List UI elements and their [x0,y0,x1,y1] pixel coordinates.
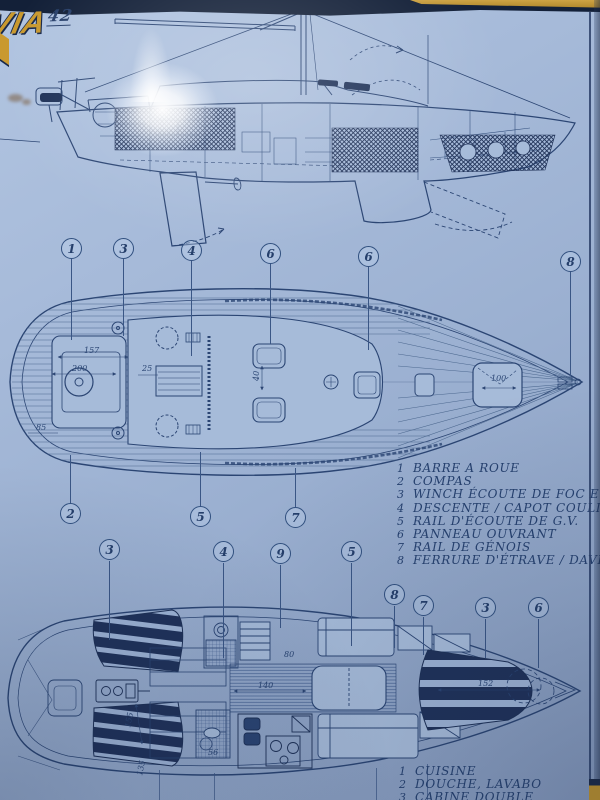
callout-circle: 4 [213,541,234,562]
legend-item: 2DOUCHE, LAVABO [399,777,542,790]
legend-label: CUISINE [415,764,476,778]
dim-label: 100 [491,374,506,383]
winch [112,427,124,439]
callout-leader-line [423,617,424,655]
legend-number: 3 [397,488,406,501]
porthole [460,144,476,160]
callout-leader-line [123,259,124,336]
porthole [488,142,504,158]
profile-cutaway-drawing [0,0,600,258]
callout-circle: 6 [358,246,379,267]
callout-leader-line [295,468,296,507]
legend-item: 1BARRE A ROUE [397,461,600,474]
toilet [214,623,228,637]
legend-number: 4 [397,502,406,515]
paper-smudge [8,94,23,102]
callout-leader-line [109,561,110,640]
callout-circle: 6 [260,243,281,264]
page-right-edge [594,0,600,800]
legend-item: 8FERRURE D'ÉTRAVE / DAVIER [397,553,600,566]
callout-leader-line [485,619,486,658]
legend-number: 2 [397,475,406,488]
legend-number: 8 [397,554,406,567]
legend-label: PANNEAU OUVRANT [413,527,556,541]
callout-leader-line [538,619,539,668]
settee [318,618,394,656]
deck-legend: 1BARRE A ROUE 2COMPAS 3WINCH ÉCOUTE DE F… [397,461,600,567]
companionway-steps [240,622,270,660]
legend-label: CABINE DOUBLE [415,790,534,800]
legend-label: BARRE A ROUE [413,461,520,475]
legend-label: FERRURE D'ÉTRAVE / DAVIER [413,553,600,567]
sink [244,718,260,730]
callout-circle: 2 [60,503,81,524]
dim-label: 157 [84,346,100,355]
callout-leader-line [570,272,571,376]
dim-label: 25 [141,364,152,373]
small-hatch [415,374,434,396]
legend-item: 6PANNEAU OUVRANT [397,527,600,540]
dim-label: 56 [208,748,218,757]
callout-circle: 8 [384,584,405,605]
paper-smudge [22,99,31,105]
callout-circle: 1 [61,238,82,259]
page-frame-line [589,12,591,800]
legend-number: 2 [399,778,408,791]
legend-label: DESCENTE / CAPOT COULISSANT [413,501,600,515]
legend-item: 1CUISINE [399,764,542,777]
callout-circle: 5 [190,506,211,527]
legend-number: 3 [399,791,408,800]
porthole [516,141,530,155]
brand-model: 42 [46,5,75,26]
legend-number: 5 [397,515,406,528]
callout-circle: 5 [341,541,362,562]
legend-label: RAIL D'ÉCOUTE DE G.V. [413,514,579,528]
legend-number: 1 [397,462,406,475]
opening-hatch [253,398,285,422]
rigging [85,8,570,118]
callout-circle: 8 [560,251,581,272]
dim-label: 40 [252,371,261,382]
settee [318,714,418,758]
dim-label: 200 [71,364,87,373]
dim-label: 80 [284,650,294,659]
callout-circle: 9 [270,543,291,564]
legend-item: 4DESCENTE / CAPOT COULISSANT [397,501,600,514]
legend-label: WINCH ÉCOUTE DE FOC ET SPI [413,487,600,501]
callout-circle: 3 [99,539,120,560]
callout-leader-line [270,264,271,344]
brand-logo: VIA42 [0,4,75,43]
engine-block [96,680,150,702]
dim-label: 152 [478,679,493,688]
extension-line [159,770,160,800]
callout-leader-line [200,452,201,506]
callout-circle: 3 [475,597,496,618]
deck-plan-drawing: 157 200 85 25 40 100 [0,285,600,480]
legend-number: 1 [399,765,408,778]
callout-circle: 7 [285,507,306,528]
galley [238,714,312,768]
table-corner-sliver [589,779,600,800]
legend-item: 3CABINE DOUBLE [399,790,542,800]
callout-leader-line [394,606,395,648]
callout-leader-line [71,259,72,340]
callout-circle: 6 [528,597,549,618]
hatched-sections [115,108,555,172]
legend-item: 5RAIL D'ÉCOUTE DE G.V. [397,514,600,527]
callout-circle: 3 [113,238,134,259]
callout-leader-line [280,565,281,628]
dim-label: 135 [135,760,147,777]
callout-leader-line [70,455,71,503]
callout-circle: 4 [181,240,202,261]
sink [244,733,260,745]
callout-leader-line [351,563,352,646]
legend-number: 7 [397,541,406,554]
lazarette [48,680,82,716]
legend-item: 2COMPAS [397,474,600,487]
callout-leader-line [191,261,192,356]
dim-label: 85 [36,423,46,432]
callout-leader-line [223,563,224,658]
legend-item: 3WINCH ÉCOUTE DE FOC ET SPI [397,487,600,500]
extension-line [376,768,377,800]
legend-label: DOUCHE, LAVABO [415,777,542,791]
interior-legend: 1CUISINE 2DOUCHE, LAVABO 3CABINE DOUBLE [399,764,542,800]
legend-item: 7RAIL DE GÉNOIS [397,540,600,553]
callout-circle: 7 [413,595,434,616]
brochure-page: 157 200 85 25 40 100 [0,0,600,800]
legend-number: 6 [397,528,406,541]
dim-label: 140 [258,681,273,690]
extension-line [214,773,215,800]
callout-leader-line [368,267,369,350]
logo-sliver [0,33,9,65]
opening-hatch [253,344,285,368]
companionway-hatch [156,366,202,396]
brand-name: VIA [0,4,50,41]
